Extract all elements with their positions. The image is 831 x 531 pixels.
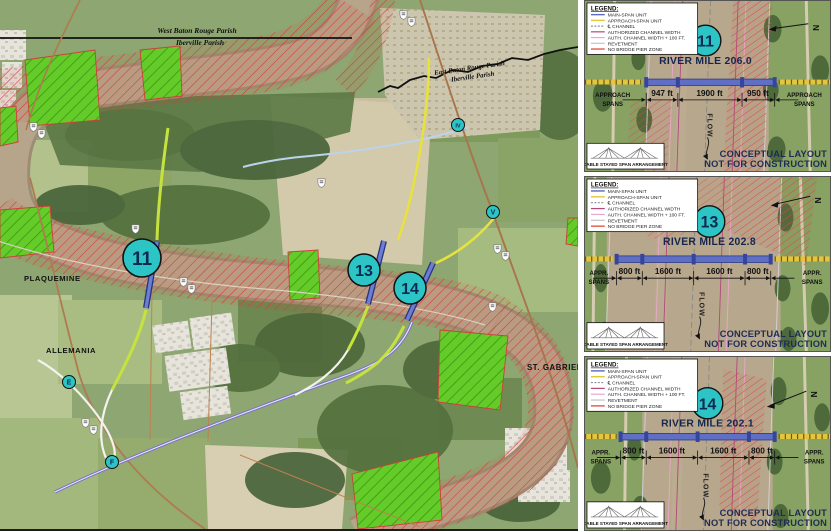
project-area-map: E F IV V 11 13 14 West Baton Rouge Paris… xyxy=(0,0,578,531)
legend-title: LEGEND: xyxy=(591,362,619,369)
highway-shield-icon xyxy=(494,245,501,254)
dim-800-left: 800 ft xyxy=(623,445,645,455)
route-marker-f-label: F xyxy=(110,460,115,467)
dim-1600-left: 1600 ft xyxy=(655,266,681,276)
panel-badge-11-label: 11 xyxy=(697,33,714,50)
legend-item: MAIN-SPAN UNIT xyxy=(608,189,647,195)
town-label-plaquemine: PLAQUEMINE xyxy=(24,274,81,283)
cable-stayed-box: CABLE STAYED SPAN ARRANGEMENT xyxy=(585,323,668,349)
dim-1600-right: 1600 ft xyxy=(706,266,732,276)
legend-item: NO BRIDGE PIER ZONE xyxy=(608,404,663,410)
legend-item: APPROACH-SPAN UNIT xyxy=(608,18,662,24)
highway-shield-icon xyxy=(90,426,97,435)
appr-spans-right-1: APPR. xyxy=(803,270,822,277)
route-marker-iv-label: IV xyxy=(455,124,461,130)
legend-item: APPROACH-SPAN UNIT xyxy=(608,375,662,381)
legend-item: REVETMENT xyxy=(608,218,638,224)
main-span-bar xyxy=(646,79,774,85)
approach-spans-right-1: APPROACH xyxy=(787,92,822,99)
town-label-st-gabriel: ST. GABRIEL xyxy=(527,363,578,372)
approach-spans-left-2: SPANS xyxy=(602,101,623,108)
flow-label: FLOW xyxy=(706,113,713,137)
cable-stayed-label: CABLE STAYED SPAN ARRANGEMENT xyxy=(585,162,668,167)
panel-3-svg: 800 ft 1600 ft 1600 ft 800 ft APPR. SPAN… xyxy=(585,357,830,530)
legend-box: LEGEND: MAIN-SPAN UNIT APPROACH-SPAN UNI… xyxy=(587,179,698,232)
river-mile-title: RIVER MILE 202.8 xyxy=(663,237,756,248)
dim-1600-right: 1600 ft xyxy=(710,445,736,455)
legend-item: APPROACH-SPAN UNIT xyxy=(608,195,662,201)
highway-shield-icon xyxy=(180,278,187,287)
legend-item: AUTHORIZED CHANNEL WIDTH xyxy=(608,30,681,36)
badge-11-label: 11 xyxy=(132,249,153,270)
legend-item: REVETMENT xyxy=(608,398,638,404)
legend-item: AUTH. CHANNEL WIDTH + 100 FT. xyxy=(608,36,685,42)
legend-box: LEGEND: MAIN-SPAN UNIT APPROACH-SPAN UNI… xyxy=(587,3,698,54)
appr-spans-right-2: SPANS xyxy=(804,459,825,466)
dim-1600-left: 1600 ft xyxy=(659,445,685,455)
legend-item: ℄ CHANNEL xyxy=(607,381,636,387)
route-marker-v-label: V xyxy=(491,210,496,217)
cable-stayed-label: CABLE STAYED SPAN ARRANGEMENT xyxy=(585,342,668,347)
highway-shield-icon xyxy=(30,123,37,132)
highway-shield-icon xyxy=(408,18,415,27)
panel-badge-14-label: 14 xyxy=(699,396,717,413)
highway-shield-icon xyxy=(82,419,89,428)
highway-shield-icon xyxy=(132,225,139,234)
legend-title: LEGEND: xyxy=(591,182,619,189)
highway-shield-icon xyxy=(502,252,509,261)
highway-shield-icon xyxy=(400,11,407,20)
legend-item: AUTH. CHANNEL WIDTH + 100 FT. xyxy=(608,212,685,218)
parish-label-west-1: West Baton Rouge Parish xyxy=(157,26,236,35)
disclaimer-line-2: NOT FOR CONSTRUCTION xyxy=(704,518,827,528)
legend-title: LEGEND: xyxy=(591,5,618,12)
legend-item: REVETMENT xyxy=(608,41,638,47)
cable-stayed-box: CABLE STAYED SPAN ARRANGEMENT xyxy=(585,502,668,528)
disclaimer-line-1: CONCEPTUAL LAYOUT xyxy=(720,508,828,518)
appr-spans-left-2: SPANS xyxy=(590,459,611,466)
panel-1-svg: 947 ft 1900 ft 950 ft APPROACH SPANS APP… xyxy=(585,1,830,171)
legend-item: NO BRIDGE PIER ZONE xyxy=(608,224,663,230)
appr-spans-left-1: APPR. xyxy=(591,450,610,457)
north-label: N xyxy=(811,25,821,31)
legend-item: AUTHORIZED CHANNEL WIDTH xyxy=(608,207,681,213)
dim-950: 950 ft xyxy=(747,88,769,98)
legend-item: ℄ CHANNEL xyxy=(607,24,636,30)
disclaimer-line-1: CONCEPTUAL LAYOUT xyxy=(720,149,827,159)
legend-item: AUTHORIZED CHANNEL WIDTH xyxy=(608,386,681,392)
highway-shield-icon xyxy=(318,179,325,188)
bridge-alternatives-exhibit: E F IV V 11 13 14 West Baton Rouge Paris… xyxy=(0,0,831,531)
appr-spans-left-2: SPANS xyxy=(589,279,610,286)
panel-badge-13-label: 13 xyxy=(701,214,719,231)
legend-item: AUTH. CHANNEL WIDTH + 100 FT. xyxy=(608,392,686,398)
dim-1900: 1900 ft xyxy=(696,88,723,98)
disclaimer-line-2: NOT FOR CONSTRUCTION xyxy=(704,338,827,349)
legend-item: MAIN-SPAN UNIT xyxy=(608,369,647,375)
river-mile-title: RIVER MILE 206.0 xyxy=(659,56,752,67)
flow-label: FLOW xyxy=(702,473,709,498)
badge-13-label: 13 xyxy=(355,263,373,280)
highway-shield-icon xyxy=(489,303,496,312)
highway-shield-icon xyxy=(38,130,45,139)
legend-box: LEGEND: MAIN-SPAN UNIT APPROACH-SPAN UNI… xyxy=(587,359,698,411)
badge-14-label: 14 xyxy=(401,281,419,298)
map-svg: E F IV V 11 13 14 West Baton Rouge Paris… xyxy=(0,0,578,529)
dim-800-right: 800 ft xyxy=(747,266,769,276)
panel-2-svg: 800 ft 1600 ft 1600 ft 800 ft APPR. SPAN… xyxy=(585,177,830,351)
river-mile-title: RIVER MILE 202.1 xyxy=(661,418,754,429)
disclaimer-line-2: NOT FOR CONSTRUCTION xyxy=(704,159,827,169)
appr-spans-right-2: SPANS xyxy=(802,279,823,286)
legend-item: MAIN-SPAN UNIT xyxy=(608,13,647,19)
dim-800-right: 800 ft xyxy=(751,445,773,455)
dim-947: 947 ft xyxy=(651,88,673,98)
highway-shield-icon xyxy=(188,285,195,294)
route-marker-e-label: E xyxy=(67,380,72,387)
dim-800-left: 800 ft xyxy=(619,266,641,276)
parish-label-west-2: Iberville Parish xyxy=(175,38,224,47)
legend-item: NO BRIDGE PIER ZONE xyxy=(608,47,663,53)
north-label: N xyxy=(813,197,823,203)
inset-panel-river-mile-202-1: 800 ft 1600 ft 1600 ft 800 ft APPR. SPAN… xyxy=(584,356,831,531)
appr-spans-right-1: APPR. xyxy=(805,450,824,457)
north-label: N xyxy=(809,391,819,397)
town-label-allemania: ALLEMANIA xyxy=(46,346,96,355)
cable-stayed-label: CABLE STAYED SPAN ARRANGEMENT xyxy=(585,521,668,526)
legend-item: ℄ CHANNEL xyxy=(607,201,636,207)
inset-panel-river-mile-206: 947 ft 1900 ft 950 ft APPROACH SPANS APP… xyxy=(584,0,831,172)
approach-spans-right-2: SPANS xyxy=(794,101,815,108)
appr-spans-left-1: APPR. xyxy=(589,270,608,277)
approach-spans-left-1: APPROACH xyxy=(595,92,630,99)
cable-stayed-box: CABLE STAYED SPAN ARRANGEMENT xyxy=(585,143,668,169)
inset-panel-river-mile-202-8: 800 ft 1600 ft 1600 ft 800 ft APPR. SPAN… xyxy=(584,176,831,352)
flow-label: FLOW xyxy=(698,292,705,317)
